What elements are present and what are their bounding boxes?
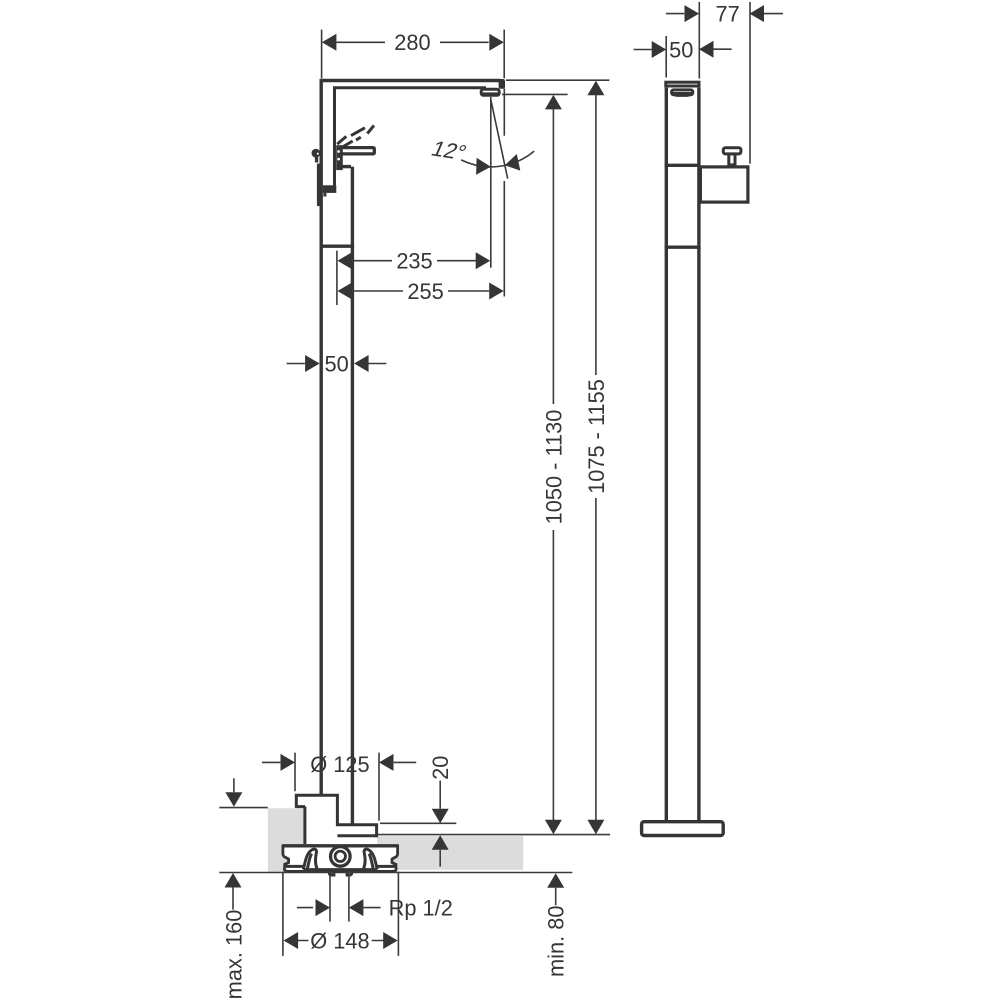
svg-text:1050 - 1130: 1050 - 1130 [541,410,566,525]
svg-text:20: 20 [428,756,453,780]
svg-text:min. 80: min. 80 [544,906,569,977]
svg-text:77: 77 [715,2,739,27]
svg-text:1075 - 1155: 1075 - 1155 [584,379,609,494]
svg-text:Ø 148: Ø 148 [310,928,369,953]
svg-text:Ø 125: Ø 125 [310,752,369,777]
svg-text:Rp 1/2: Rp 1/2 [389,895,453,920]
svg-text:255: 255 [407,279,443,304]
svg-text:50: 50 [324,351,348,376]
svg-text:235: 235 [396,249,432,274]
svg-text:280: 280 [394,30,430,55]
svg-text:max. 160: max. 160 [221,910,246,1000]
svg-text:50: 50 [669,37,693,62]
